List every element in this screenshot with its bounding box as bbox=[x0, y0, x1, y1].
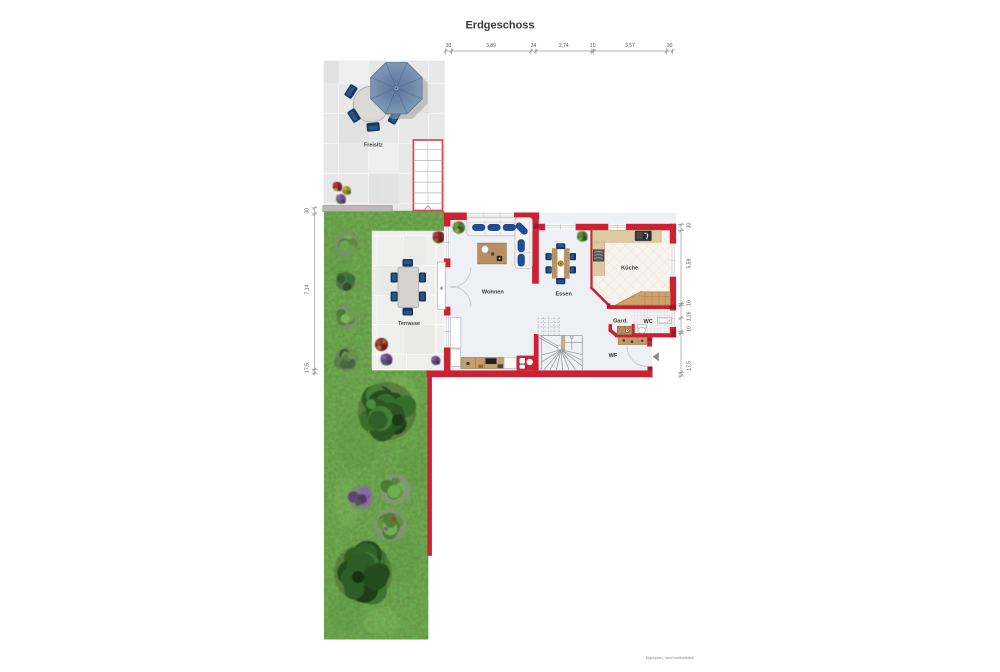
svg-text:Freisitz: Freisitz bbox=[364, 143, 383, 149]
svg-text:5,59: 5,59 bbox=[687, 258, 693, 268]
svg-text:3,57: 3,57 bbox=[625, 43, 635, 49]
svg-text:2,74: 2,74 bbox=[559, 43, 569, 49]
svg-text:7,14: 7,14 bbox=[305, 284, 311, 294]
svg-text:Terrasse: Terrasse bbox=[398, 321, 420, 327]
svg-text:10: 10 bbox=[687, 326, 693, 332]
svg-text:Küche: Küche bbox=[621, 266, 638, 272]
svg-text:30: 30 bbox=[446, 43, 452, 49]
svg-text:WC: WC bbox=[644, 319, 653, 325]
svg-text:1,26: 1,26 bbox=[687, 311, 693, 321]
svg-text:10: 10 bbox=[590, 43, 596, 49]
svg-text:Gard.: Gard. bbox=[613, 319, 628, 325]
svg-text:Eigenplan, nicht maßstäblich: Eigenplan, nicht maßstäblich bbox=[646, 656, 695, 660]
svg-text:10: 10 bbox=[687, 300, 693, 306]
svg-text:30: 30 bbox=[687, 223, 693, 229]
svg-text:Essen: Essen bbox=[555, 291, 572, 297]
svg-text:17,5: 17,5 bbox=[687, 361, 693, 371]
svg-text:Erdgeschoss: Erdgeschoss bbox=[465, 20, 534, 32]
svg-text:Wohnen: Wohnen bbox=[482, 290, 505, 296]
svg-text:30: 30 bbox=[667, 43, 673, 49]
svg-text:3,89: 3,89 bbox=[486, 43, 496, 49]
svg-text:24: 24 bbox=[531, 43, 537, 49]
svg-text:WF: WF bbox=[609, 353, 618, 359]
svg-text:17,5: 17,5 bbox=[305, 363, 311, 373]
svg-text:30: 30 bbox=[305, 208, 311, 214]
